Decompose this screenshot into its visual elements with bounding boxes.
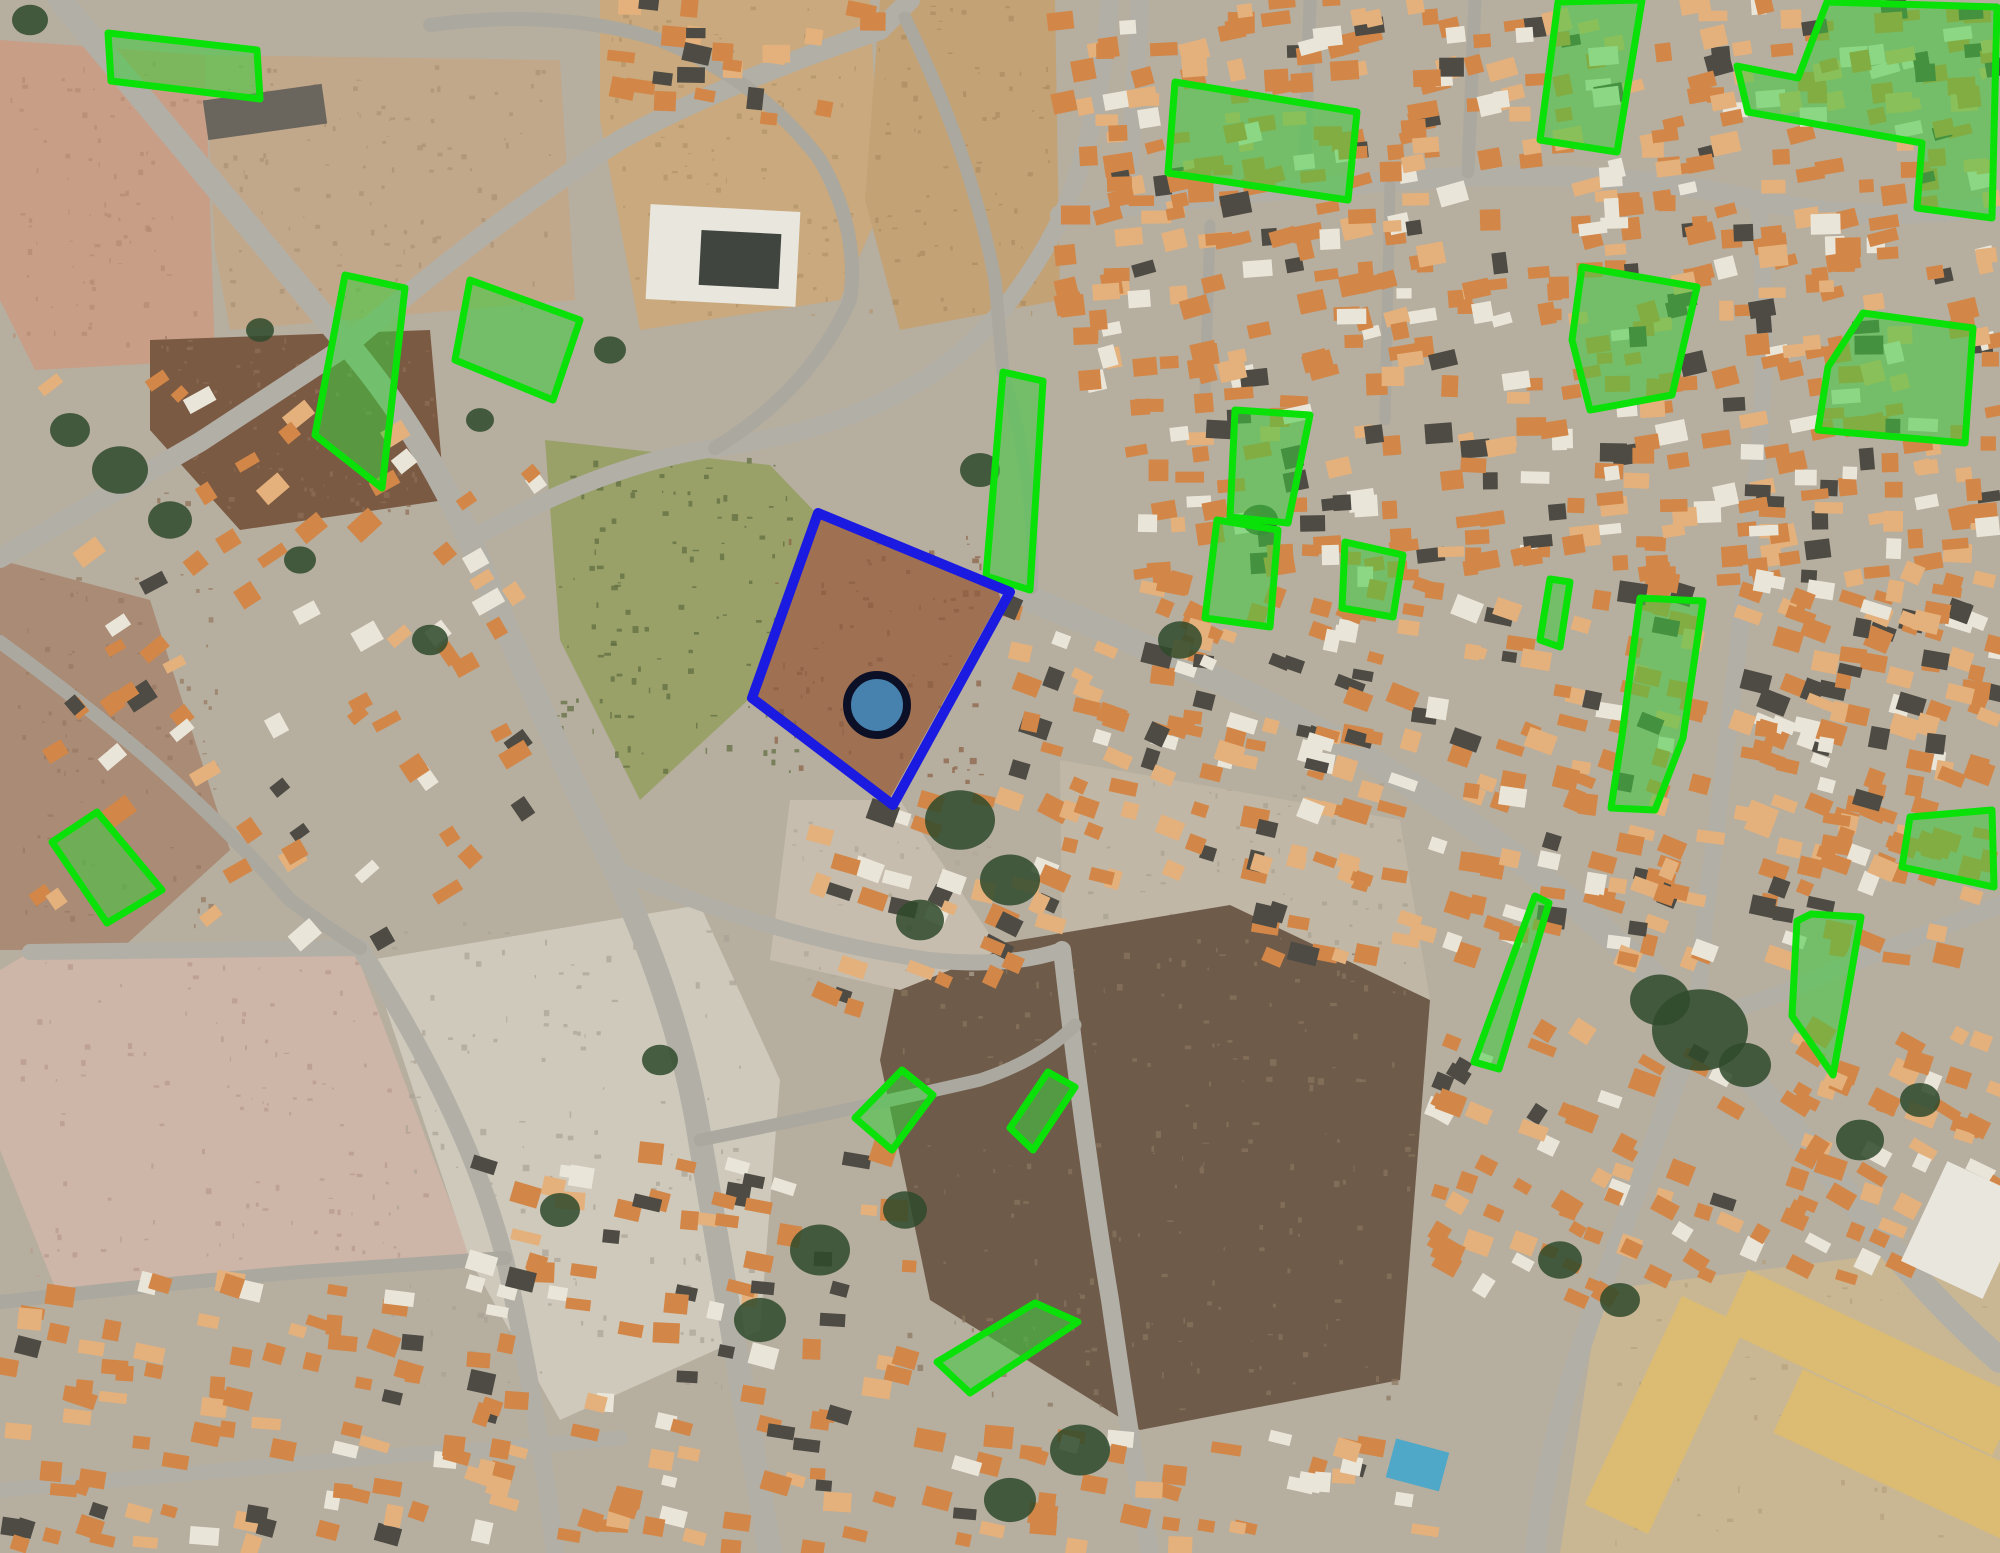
tree-canopy bbox=[1719, 1043, 1771, 1087]
satellite-map[interactable] bbox=[0, 0, 2000, 1553]
tree-canopy bbox=[1158, 621, 1202, 658]
tree-canopy bbox=[1600, 1283, 1640, 1317]
tree-canopy bbox=[1050, 1425, 1110, 1476]
detection-box-det-08[interactable] bbox=[1205, 520, 1278, 627]
tree-canopy bbox=[148, 501, 192, 538]
tree-canopy bbox=[594, 336, 626, 363]
map-viewport[interactable] bbox=[0, 0, 2000, 1553]
tree-canopy bbox=[12, 5, 48, 36]
tree-canopy bbox=[984, 1478, 1036, 1522]
tree-canopy bbox=[1836, 1120, 1884, 1161]
tree-canopy bbox=[1538, 1241, 1582, 1278]
tree-canopy bbox=[540, 1193, 580, 1227]
road-14 bbox=[1468, 0, 1475, 172]
tree-canopy bbox=[642, 1045, 678, 1076]
tree-canopy bbox=[925, 790, 995, 850]
tree-canopy bbox=[1900, 1083, 1940, 1117]
tree-canopy bbox=[92, 446, 148, 494]
tree-canopy bbox=[466, 408, 494, 432]
tree-canopy bbox=[284, 546, 316, 573]
tree-canopy bbox=[790, 1225, 850, 1276]
tree-canopy bbox=[50, 413, 90, 447]
detection-box-det-09[interactable] bbox=[1342, 542, 1403, 617]
tree-canopy bbox=[1630, 975, 1690, 1026]
tree-canopy bbox=[883, 1191, 927, 1228]
tree-canopy bbox=[246, 318, 274, 342]
tree-canopy bbox=[412, 625, 448, 656]
tree-canopy bbox=[980, 855, 1040, 906]
road-17 bbox=[30, 948, 360, 952]
tree-canopy bbox=[734, 1298, 786, 1342]
location-marker[interactable] bbox=[847, 675, 907, 735]
building-2 bbox=[699, 230, 782, 289]
tree-canopy bbox=[896, 900, 944, 941]
